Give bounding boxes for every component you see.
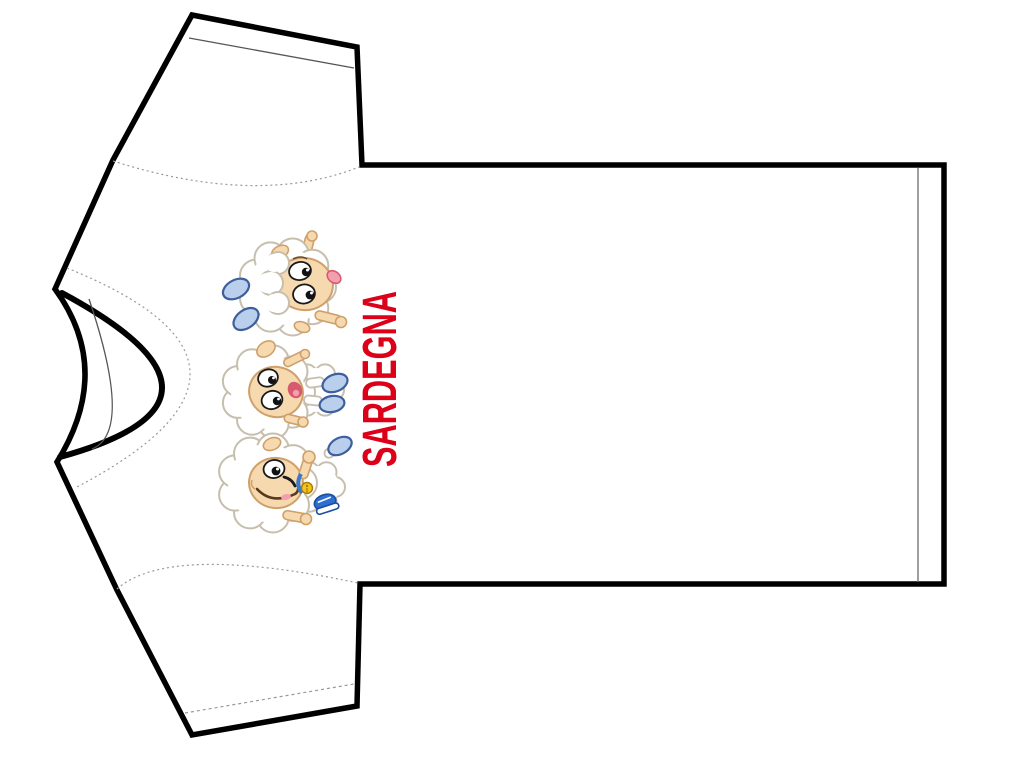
tshirt-silhouette (55, 15, 944, 735)
tshirt-graphic: SARDEGNA (0, 0, 1024, 768)
sardegna-print-text: SARDEGNA (354, 291, 407, 467)
tshirt-outline (55, 15, 944, 735)
sheep3-bell-dot (306, 485, 308, 487)
tshirt-mockup-canvas: SARDEGNA (0, 0, 1024, 768)
sheep3-eye-glint (276, 468, 279, 471)
sheep3-pupil (272, 467, 281, 476)
sheep2-tongue (293, 390, 299, 396)
